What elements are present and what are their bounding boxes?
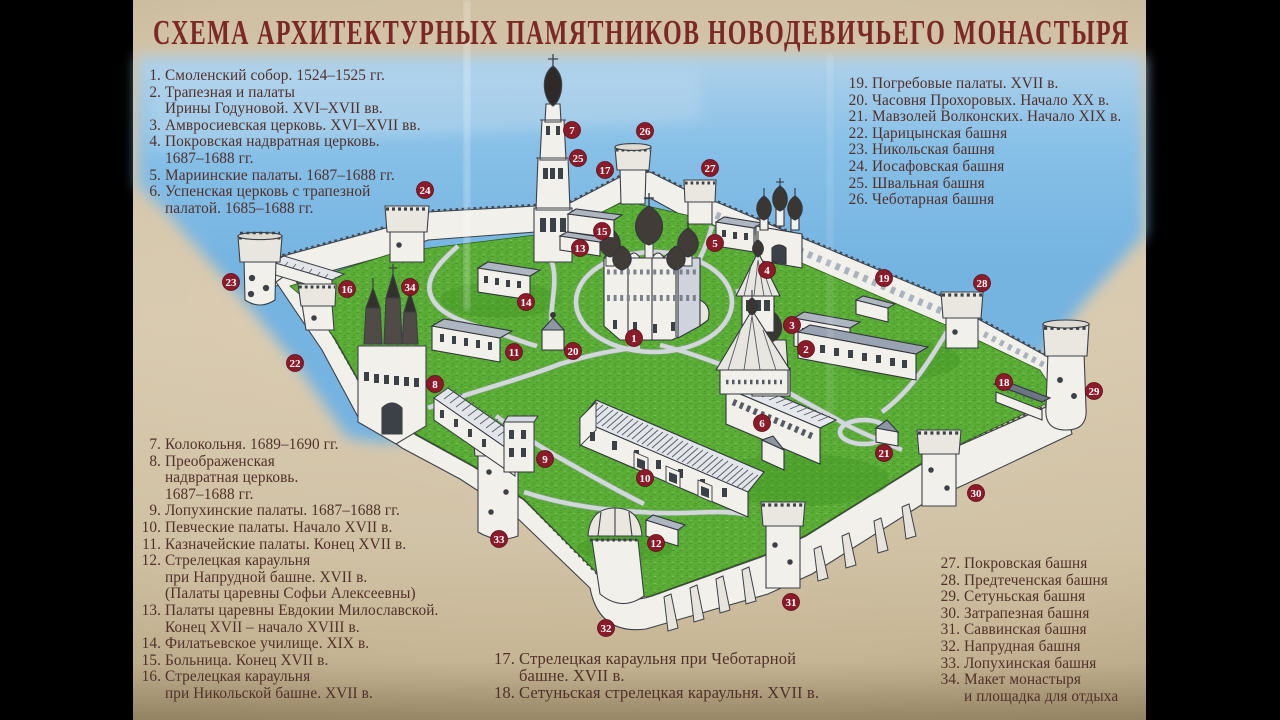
svg-text:31: 31 xyxy=(786,597,797,609)
svg-text:25: 25 xyxy=(573,153,585,165)
svg-text:7: 7 xyxy=(569,125,575,137)
svg-text:5: 5 xyxy=(712,238,718,250)
svg-text:11: 11 xyxy=(509,347,519,359)
svg-text:18: 18 xyxy=(999,377,1011,389)
svg-text:26: 26 xyxy=(640,126,652,138)
svg-text:27: 27 xyxy=(705,163,717,175)
svg-text:14: 14 xyxy=(521,297,533,309)
svg-text:6: 6 xyxy=(759,418,765,430)
svg-text:33: 33 xyxy=(494,534,506,546)
svg-text:15: 15 xyxy=(597,226,609,238)
svg-text:30: 30 xyxy=(971,488,983,500)
svg-text:9: 9 xyxy=(542,454,548,466)
svg-text:23: 23 xyxy=(226,277,238,289)
svg-text:12: 12 xyxy=(651,538,663,550)
svg-text:1: 1 xyxy=(631,333,637,345)
svg-text:28: 28 xyxy=(977,278,989,290)
svg-text:8: 8 xyxy=(432,379,438,391)
svg-text:2: 2 xyxy=(803,344,809,356)
svg-text:22: 22 xyxy=(290,358,302,370)
svg-text:20: 20 xyxy=(568,346,580,358)
svg-text:13: 13 xyxy=(575,243,587,255)
svg-text:32: 32 xyxy=(601,623,613,635)
svg-text:4: 4 xyxy=(764,265,770,277)
svg-text:3: 3 xyxy=(789,320,795,332)
svg-text:19: 19 xyxy=(879,273,891,285)
svg-text:34: 34 xyxy=(405,282,417,294)
svg-text:16: 16 xyxy=(342,284,354,296)
svg-text:24: 24 xyxy=(420,185,432,197)
svg-text:21: 21 xyxy=(879,448,890,460)
svg-text:29: 29 xyxy=(1089,386,1101,398)
svg-text:17: 17 xyxy=(600,165,612,177)
svg-text:10: 10 xyxy=(640,473,652,485)
